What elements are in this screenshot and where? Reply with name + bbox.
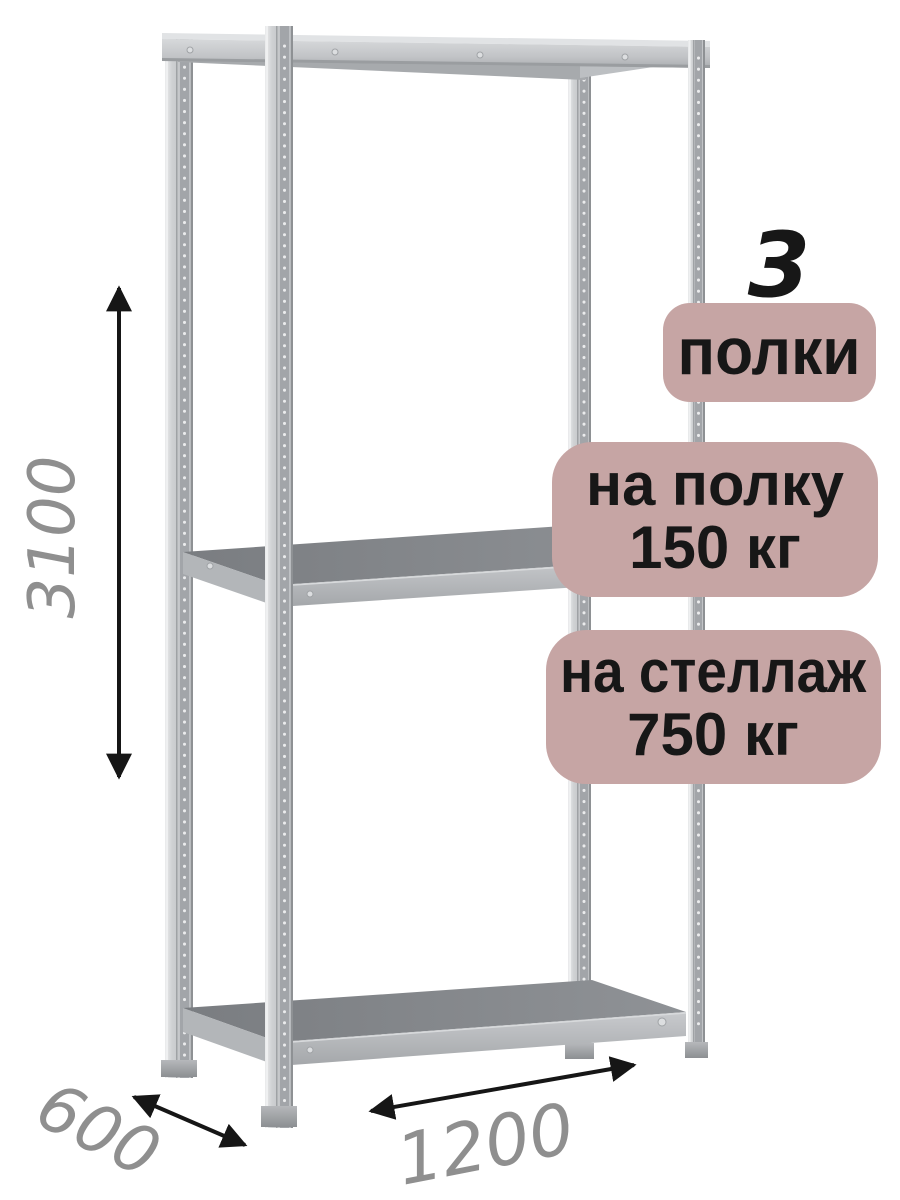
shelf-load-badge-line2: 150 кг — [629, 514, 801, 581]
post-foot — [565, 1043, 594, 1059]
shelf-count-number: 3 — [748, 213, 811, 318]
post-foot — [685, 1042, 708, 1058]
bottom-shelf — [183, 980, 686, 1066]
shelf-load-badge: на полку 150 кг — [552, 442, 878, 597]
rack-load-badge-line2: 750 кг — [627, 701, 799, 768]
dimension-annotations: 3100 600 1200 — [16, 288, 634, 1200]
info-badges: 3 полки на полку 150 кг на стеллаж 750 к… — [546, 213, 881, 784]
screw-icon — [207, 563, 213, 569]
screw-icon — [307, 591, 313, 597]
shelf-load-badge-line1: на полку — [586, 451, 845, 518]
screw-icon — [332, 49, 338, 55]
post-foot — [261, 1106, 297, 1127]
post-foot — [161, 1060, 197, 1077]
height-dimension-label: 3100 — [16, 456, 90, 619]
screw-icon — [477, 52, 483, 58]
depth-dimension-label: 600 — [25, 1067, 172, 1193]
product-image: 3100 600 1200 3 полки на полку 150 кг на… — [0, 0, 900, 1200]
screw-icon — [307, 1047, 313, 1053]
screw-icon — [622, 54, 628, 60]
screw-icon — [658, 1018, 666, 1026]
shelving-rack-figure: 3100 600 1200 3 полки на полку 150 кг на… — [0, 0, 900, 1200]
rack-load-badge-line1: на стеллаж — [560, 638, 867, 705]
shelf-count-badge: полки — [663, 303, 876, 402]
post-front-left — [261, 26, 297, 1128]
rack-load-badge: на стеллаж 750 кг — [546, 630, 881, 784]
shelf-count-badge-label: полки — [678, 314, 861, 388]
screw-icon — [187, 47, 193, 53]
